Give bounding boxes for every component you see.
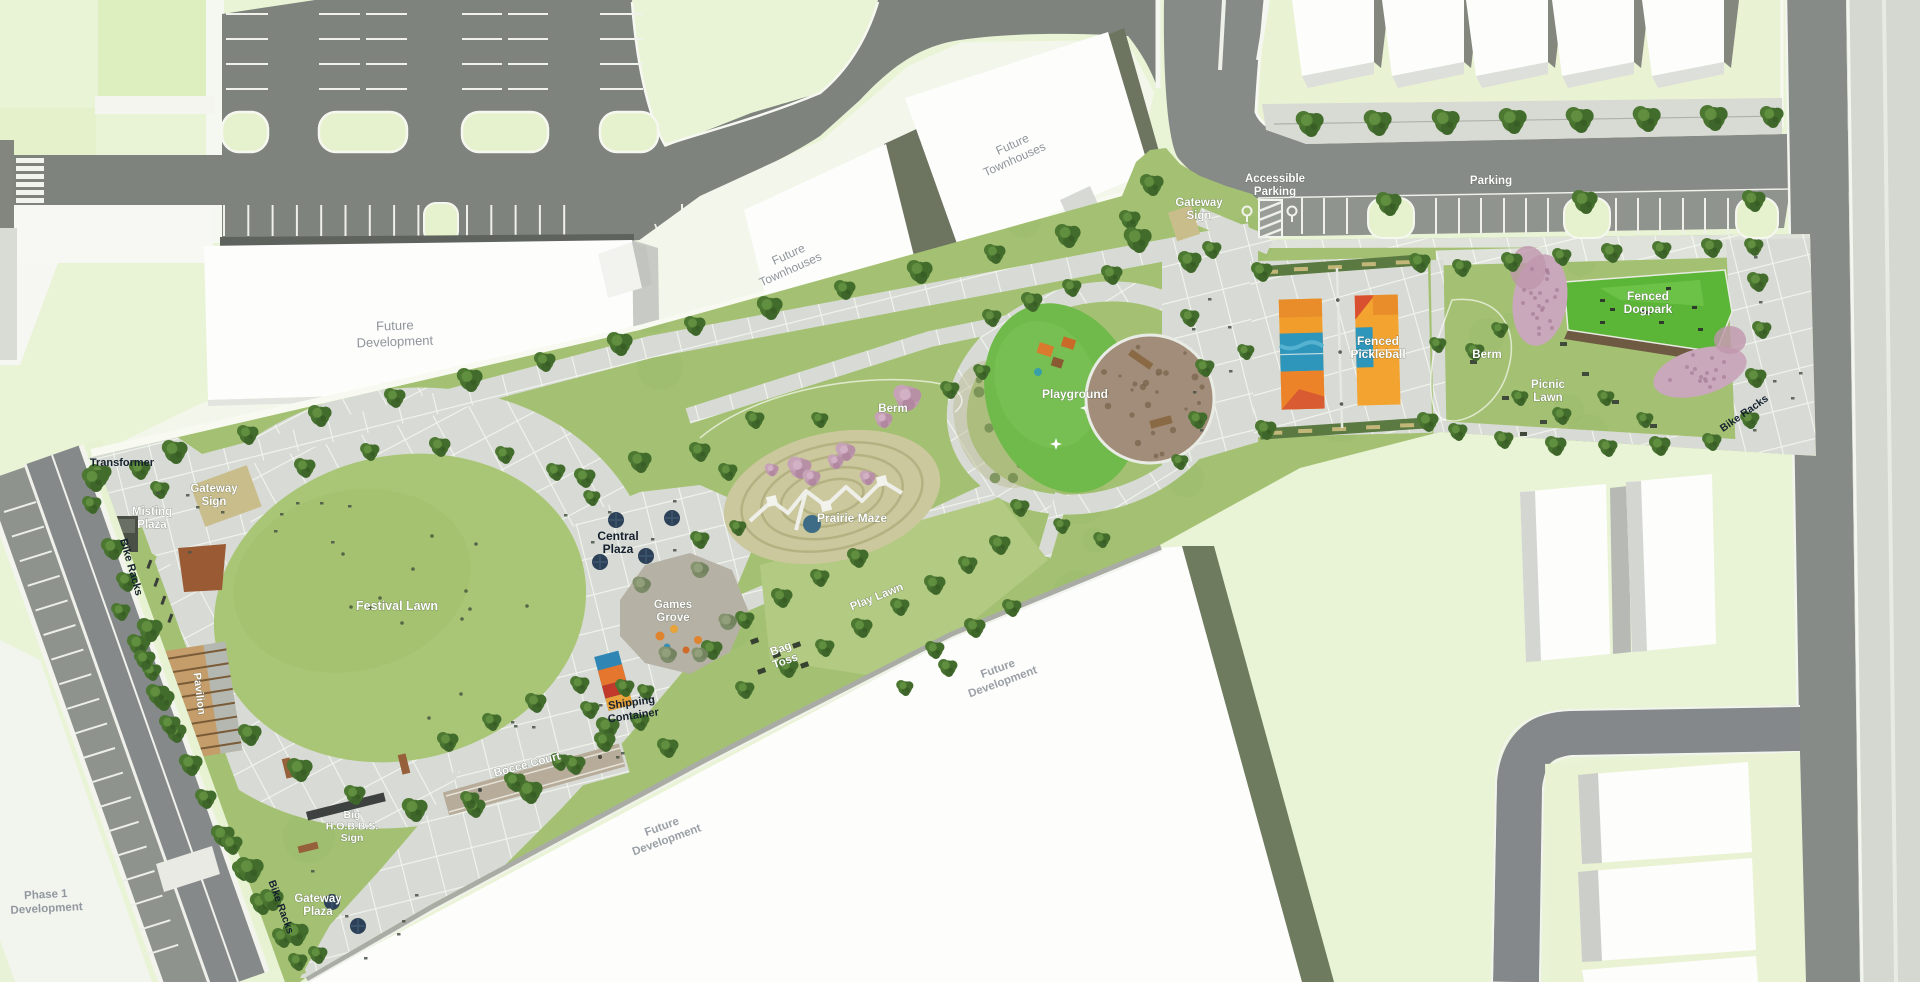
svg-text:Future: Future: [376, 317, 414, 333]
svg-text:Sign: Sign: [341, 832, 364, 844]
svg-text:Prairie Maze: Prairie Maze: [817, 511, 887, 525]
svg-text:Gateway: Gateway: [294, 893, 342, 905]
svg-text:Fenced: Fenced: [1357, 334, 1399, 348]
svg-text:Accessible: Accessible: [1245, 173, 1305, 185]
svg-text:Sign: Sign: [202, 496, 227, 508]
svg-text:Parking: Parking: [1254, 186, 1296, 198]
svg-text:Central: Central: [597, 529, 638, 543]
svg-text:Dogpark: Dogpark: [1624, 302, 1673, 316]
svg-text:Sign: Sign: [1187, 210, 1212, 222]
svg-text:Berm: Berm: [878, 403, 907, 415]
svg-text:Fenced: Fenced: [1627, 289, 1669, 303]
svg-text:Big: Big: [344, 809, 361, 821]
svg-text:Parking: Parking: [1470, 175, 1512, 187]
svg-text:Festival Lawn: Festival Lawn: [356, 599, 438, 613]
svg-text:Transformer: Transformer: [90, 457, 155, 469]
svg-text:Gateway: Gateway: [1175, 197, 1223, 209]
svg-text:Games: Games: [654, 599, 692, 611]
svg-text:Plaza: Plaza: [603, 542, 634, 556]
svg-text:Development: Development: [356, 333, 433, 351]
svg-text:Berm: Berm: [1472, 349, 1501, 361]
svg-text:Plaza: Plaza: [137, 519, 167, 531]
svg-text:Gateway: Gateway: [190, 483, 238, 495]
svg-text:Phase 1: Phase 1: [24, 888, 69, 902]
svg-text:Playground: Playground: [1042, 387, 1108, 401]
svg-text:Misting: Misting: [132, 506, 172, 518]
svg-text:H.O.B.B.S.: H.O.B.B.S.: [326, 821, 379, 833]
svg-text:Pickleball: Pickleball: [1350, 347, 1405, 361]
svg-text:Lawn: Lawn: [1533, 392, 1562, 404]
svg-text:Grove: Grove: [656, 612, 689, 624]
svg-text:Plaza: Plaza: [303, 906, 333, 918]
svg-text:Picnic: Picnic: [1531, 379, 1565, 391]
